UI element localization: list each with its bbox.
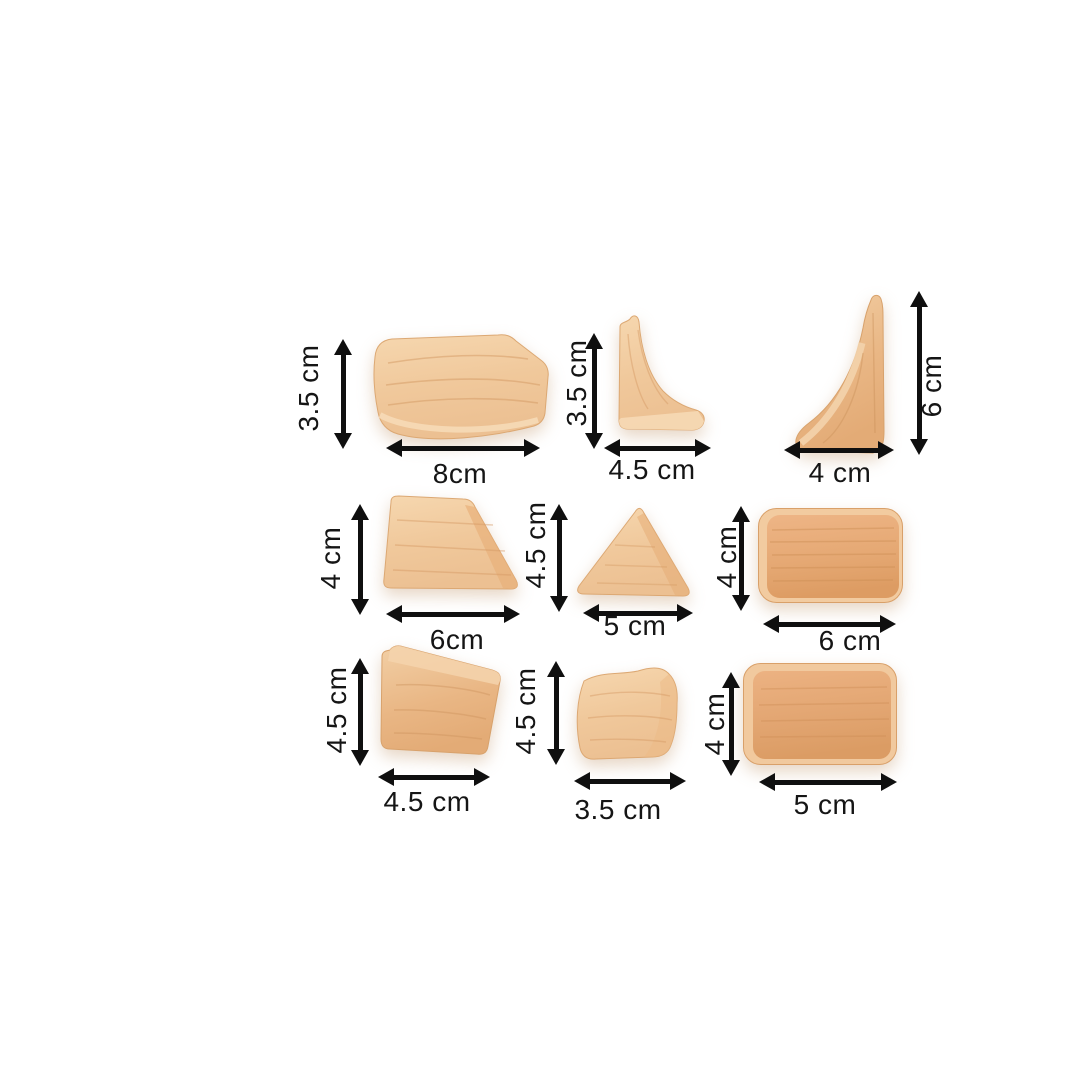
curved-plank-shape [368, 333, 552, 448]
concave-corner-tall-shape [793, 293, 890, 455]
width-label: 5 cm [794, 791, 857, 819]
wide-rounded-rectangle-shape [758, 508, 903, 603]
width-label: 6 cm [819, 627, 882, 655]
concave-corner-small-shape [618, 314, 705, 432]
height-arrow [592, 348, 597, 434]
width-arrow [393, 775, 475, 780]
height-label: 4.5 cm [512, 667, 540, 754]
height-label: 3.5 cm [563, 339, 591, 426]
height-label: 4 cm [701, 693, 729, 756]
height-arrow [554, 676, 559, 750]
width-arrow [589, 779, 671, 784]
height-arrow [358, 519, 363, 600]
height-label: 4.5 cm [323, 666, 351, 753]
height-label: 4.5 cm [522, 501, 550, 588]
height-label: 4 cm [713, 526, 741, 589]
curved-square-shape [572, 662, 685, 763]
height-arrow [341, 354, 346, 434]
width-label: 4.5 cm [608, 456, 695, 484]
width-arrow [401, 446, 525, 451]
width-label: 5 cm [604, 612, 667, 640]
width-arrow [401, 612, 505, 617]
height-label: 3.5 cm [295, 344, 323, 431]
width-arrow [799, 448, 879, 453]
triangle-shape [575, 505, 693, 598]
width-arrow [619, 446, 696, 451]
width-arrow [774, 780, 882, 785]
height-arrow [358, 673, 363, 751]
wooden-blocks-dimension-diagram: 3.5 cm 8cm 3.5 cm 4.5 cm 6 cm 4 cm [0, 0, 1080, 1080]
rounded-rectangle-shape [743, 663, 897, 765]
wood-face [796, 295, 884, 453]
width-label: 8cm [433, 460, 487, 488]
width-label: 3.5 cm [574, 796, 661, 824]
height-label: 6 cm [918, 355, 946, 418]
height-arrow [557, 519, 562, 597]
height-label: 4 cm [317, 527, 345, 590]
width-label: 4 cm [809, 459, 872, 487]
right-trapezoid-shape [383, 495, 520, 595]
width-label: 4.5 cm [383, 788, 470, 816]
wood-face [753, 671, 891, 759]
wedge-block-shape [380, 645, 503, 758]
